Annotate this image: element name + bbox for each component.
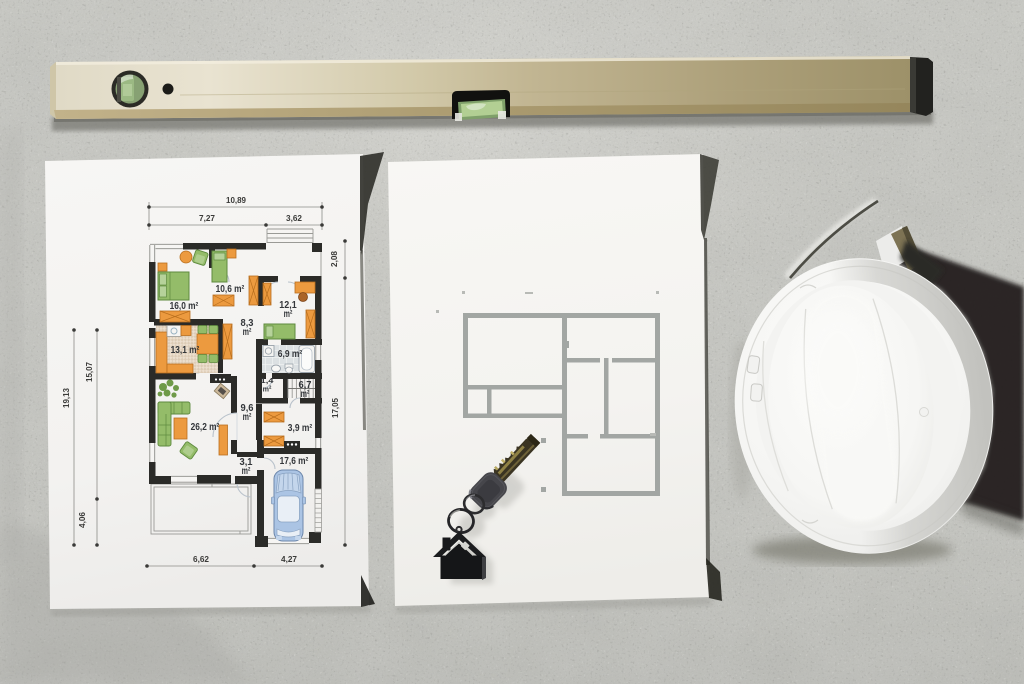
svg-text:6,9 m²: 6,9 m² bbox=[278, 349, 303, 360]
svg-text:13,1 m²: 13,1 m² bbox=[171, 345, 200, 356]
svg-text:m²: m² bbox=[242, 466, 251, 477]
svg-text:17,05: 17,05 bbox=[331, 397, 340, 418]
svg-text:3,9 m²: 3,9 m² bbox=[288, 423, 313, 434]
svg-text:4,27: 4,27 bbox=[281, 555, 298, 564]
svg-text:10,89: 10,89 bbox=[226, 196, 247, 205]
svg-text:6,62: 6,62 bbox=[193, 555, 210, 564]
svg-text:2,08: 2,08 bbox=[330, 250, 339, 267]
svg-text:m²: m² bbox=[301, 389, 310, 400]
svg-text:4,06: 4,06 bbox=[78, 511, 87, 528]
svg-text:m²: m² bbox=[284, 309, 293, 320]
svg-text:m²: m² bbox=[263, 385, 272, 394]
svg-text:10,6 m²: 10,6 m² bbox=[216, 284, 245, 295]
svg-text:16,0 m²: 16,0 m² bbox=[170, 301, 199, 312]
svg-text:15,07: 15,07 bbox=[85, 361, 94, 382]
svg-text:7,27: 7,27 bbox=[199, 214, 216, 223]
svg-text:m²: m² bbox=[243, 327, 252, 338]
svg-text:26,2 m²: 26,2 m² bbox=[191, 422, 220, 433]
svg-text:17,6 m²: 17,6 m² bbox=[280, 456, 309, 467]
svg-text:3,62: 3,62 bbox=[286, 214, 303, 223]
svg-text:m²: m² bbox=[243, 412, 252, 423]
svg-text:19,13: 19,13 bbox=[62, 387, 71, 408]
